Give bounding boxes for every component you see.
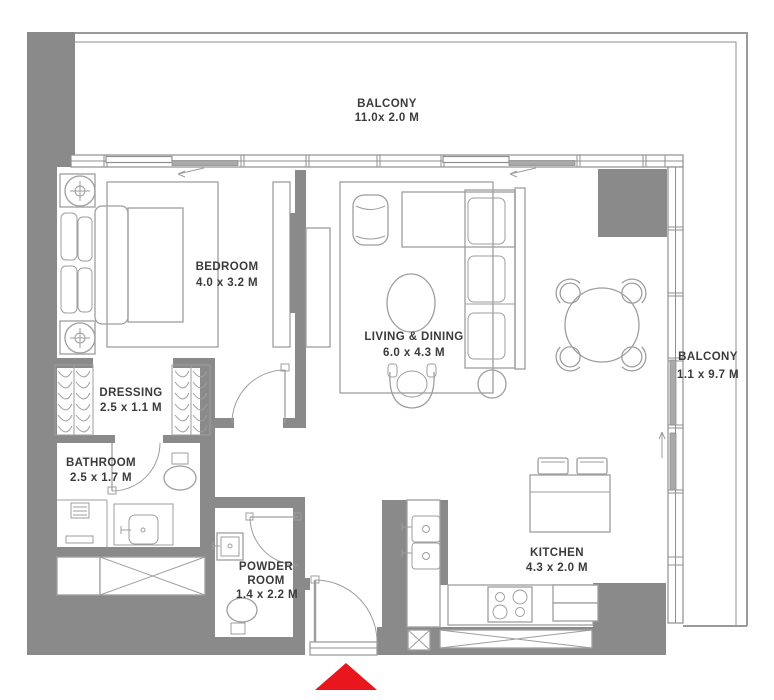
sofa-cushion xyxy=(468,313,505,359)
built-in-appliance xyxy=(553,585,598,603)
bedroom-wardrobe xyxy=(273,182,290,347)
wall-bedroom-door-left xyxy=(215,418,234,428)
tv xyxy=(290,213,297,313)
bar-stool xyxy=(577,458,607,474)
powder-sink xyxy=(213,533,243,560)
dining-table xyxy=(565,288,639,362)
pillow xyxy=(61,266,77,313)
sliding-door-panel-3 xyxy=(670,360,676,425)
slide-arrow-living xyxy=(510,168,536,177)
wall-kitchen-counter-strip xyxy=(440,500,448,585)
room-dims: 6.0 x 4.3 M xyxy=(383,347,445,359)
lamp-icon xyxy=(65,176,95,206)
label-bedroom: BEDROOM 4.0 x 3.2 M xyxy=(196,261,259,289)
pillow xyxy=(78,268,92,312)
room-dims: 2.5 x 1.1 M xyxy=(100,402,162,414)
bedroom-door xyxy=(232,364,289,423)
lamp-icon xyxy=(65,323,95,353)
wall-powder-bottom xyxy=(215,637,305,655)
room-name: POWDER xyxy=(239,561,293,573)
built-in-appliance xyxy=(553,603,598,621)
entrance-door xyxy=(311,576,377,642)
entrance-arrow xyxy=(315,663,377,690)
room-name: LIVING & DINING xyxy=(364,331,463,343)
accent-chair xyxy=(353,195,388,245)
room-dims: 2.5 x 1.7 M xyxy=(70,472,132,484)
dining-chair xyxy=(550,273,587,310)
sofa-seat xyxy=(465,190,515,368)
pillow xyxy=(61,213,77,260)
side-table xyxy=(478,370,506,398)
wall-kitchen-left xyxy=(382,500,407,630)
wall-left-main xyxy=(27,167,57,655)
sliding-door-panel-4 xyxy=(670,433,676,490)
structural-column xyxy=(598,169,667,237)
room-name: DRESSING xyxy=(99,387,162,399)
shower xyxy=(57,500,107,547)
wall-powder-right xyxy=(293,503,305,640)
sofa-cushion xyxy=(468,256,505,302)
cabinet-x-run xyxy=(440,630,592,648)
room-name: BALCONY xyxy=(678,351,738,363)
wall-dressing-bathroom-left xyxy=(27,435,115,443)
coffee-table xyxy=(387,274,435,332)
floor-plan: BALCONY 11.0x 2.0 M BEDROOM 4.0 x 3.2 M … xyxy=(0,0,774,700)
room-dims: 4.3 x 2.0 M xyxy=(526,562,588,574)
label-kitchen: KITCHEN 4.3 x 2.0 M xyxy=(526,547,588,574)
slide-arrow-kitchen xyxy=(659,432,665,458)
closet-x-unit xyxy=(100,557,205,595)
dining-set xyxy=(550,273,651,376)
room-dims: 1.1 x 9.7 M xyxy=(677,369,739,381)
sofa-back xyxy=(515,188,525,369)
kitchen-island xyxy=(530,475,610,532)
label-dressing: DRESSING 2.5 x 1.1 M xyxy=(99,387,162,414)
sofa-cushion xyxy=(468,198,505,244)
sliding-door-panel-1 xyxy=(172,161,238,166)
label-powder-room: POWDER ROOM 1.4 x 2.2 M xyxy=(236,561,298,601)
label-balcony-top: BALCONY 11.0x 2.0 M xyxy=(355,98,420,124)
dining-chair xyxy=(550,340,587,377)
room-dims: 11.0x 2.0 M xyxy=(355,112,420,124)
sofa-chaise xyxy=(402,192,515,247)
powder-room-fixtures xyxy=(213,513,301,634)
window-band-top xyxy=(71,155,683,177)
entrance xyxy=(310,576,377,690)
wall-bathroom-closet xyxy=(57,547,205,557)
hall-closet xyxy=(57,557,205,595)
room-dims: 1.4 x 2.2 M xyxy=(236,589,298,601)
room-dims: 4.0 x 3.2 M xyxy=(196,277,258,289)
wall-bottom-left-mass xyxy=(27,595,215,655)
powder-door xyxy=(246,513,301,565)
wardrobe xyxy=(55,365,93,435)
wall-left-top xyxy=(27,32,75,167)
wall-dressing-column xyxy=(200,358,215,655)
room-name: BATHROOM xyxy=(66,457,136,469)
wall-bedroom-dressing-left xyxy=(27,358,93,368)
closet-shelf xyxy=(57,557,100,595)
bed-headrest xyxy=(95,206,128,324)
label-living-dining: LIVING & DINING 6.0 x 4.3 M xyxy=(364,331,463,359)
dressing-wardrobes xyxy=(55,365,210,435)
sliding-door-fixed-2 xyxy=(443,157,509,163)
powder-toilet xyxy=(227,598,257,634)
wall-kitchen-block xyxy=(593,583,666,655)
room-name: KITCHEN xyxy=(530,547,584,559)
label-balcony-right: BALCONY 1.1 x 9.7 M xyxy=(677,351,739,381)
room-name: BALCONY xyxy=(357,98,417,110)
bed-mattress xyxy=(128,208,183,322)
wall-powder-top xyxy=(215,497,305,508)
label-bathroom: BATHROOM 2.5 x 1.7 M xyxy=(66,457,136,484)
toilet xyxy=(164,453,196,490)
vanity-sink xyxy=(114,504,173,545)
wall-dressing-bathroom-right xyxy=(163,435,215,443)
slide-arrow-bedroom xyxy=(178,168,204,177)
pillow xyxy=(78,217,92,261)
room-name: BEDROOM xyxy=(196,261,259,273)
sliding-door-fixed-1 xyxy=(106,157,172,163)
tv-console xyxy=(306,228,330,347)
bar-stool xyxy=(538,458,568,474)
wall-entry-hinge-block xyxy=(302,578,310,590)
cabinet-x-box xyxy=(408,630,430,650)
sliding-door-panel-2 xyxy=(509,161,575,166)
living-rug xyxy=(340,182,493,393)
room-name: ROOM xyxy=(247,575,284,587)
lounge-chair xyxy=(388,364,436,408)
living-furniture xyxy=(340,182,525,408)
